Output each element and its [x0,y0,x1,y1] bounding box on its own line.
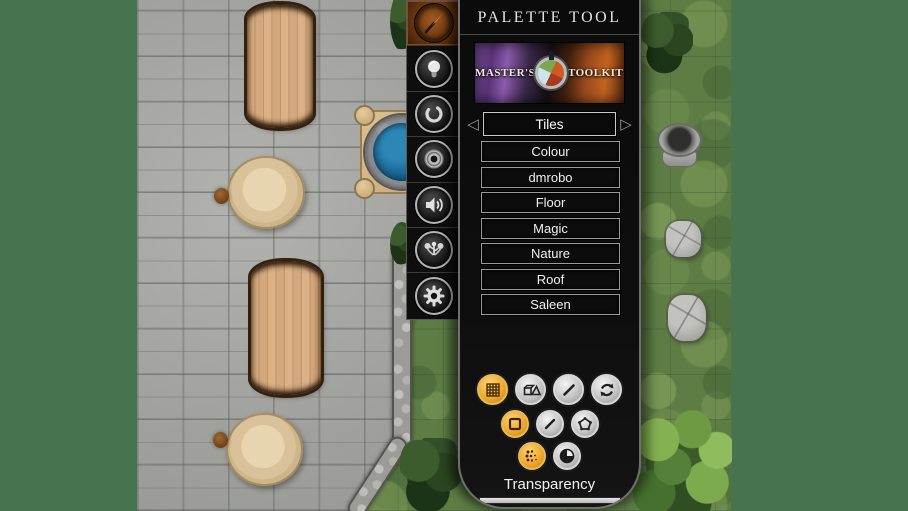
bush [633,408,732,511]
category-button[interactable]: Magic [481,218,620,239]
line-icon[interactable] [553,374,584,405]
line-icon[interactable] [536,410,564,438]
transparency-label: Transparency [460,476,639,493]
masters-toolkit-banner: MASTER'S TOOLKIT [475,43,624,103]
mode-row-1 [460,374,639,405]
polygon-icon[interactable] [571,410,599,438]
lighting-tool-button[interactable] [407,46,461,91]
category-button[interactable]: Floor [481,192,620,213]
stone-planter [657,125,702,168]
round-table [226,413,303,486]
fog-tool-button[interactable] [407,137,461,182]
transparency-slider[interactable] [479,497,621,504]
palette-tool-button[interactable] [407,1,461,46]
dial-icon[interactable] [553,442,581,470]
jug [213,432,228,448]
scatter-tool-button[interactable] [407,228,461,273]
category-button[interactable]: Roof [481,269,620,290]
halftone-icon[interactable] [518,442,546,470]
square-icon[interactable] [501,410,529,438]
bush [400,438,462,511]
jug [214,188,229,204]
well-knob [356,107,373,124]
category-button[interactable]: Nature [481,243,620,264]
rock [668,295,706,341]
shapes-icon[interactable] [515,374,546,405]
audio-tool-button[interactable] [407,183,461,228]
palette-tool-panel: PALETTE TOOL MASTER'S TOOLKIT ◁ Tiles ▷ … [458,0,641,509]
ring-icon [415,95,453,133]
category-button[interactable]: Saleen [481,294,620,315]
round-table [227,156,305,229]
settings-tool-button[interactable] [407,273,461,318]
palette-select[interactable]: Tiles [483,112,616,136]
wooden-table [247,4,313,128]
panel-bottom-controls: Transparency 1.00 [460,374,639,509]
left-arrow-icon[interactable]: ◁ [466,117,480,132]
category-list: Colour dmrobo Floor Magic Nature Roof Sa… [481,141,620,315]
mode-row-2 [460,410,639,438]
banner-right-text: TOOLKIT [567,67,624,79]
palette-selector: ◁ Tiles ▷ [466,112,633,136]
bush [641,12,693,74]
world-emblem-icon [535,57,567,89]
tool-sidebar [406,0,462,320]
brush-icon [415,4,453,42]
scatter-plants-icon [415,231,453,269]
map-canvas[interactable]: PALETTE TOOL MASTER'S TOOLKIT ◁ Tiles ▷ … [0,0,908,511]
speaker-icon [415,186,453,224]
portal-icon [415,140,453,178]
well-knob [356,180,373,197]
wooden-table [251,261,321,395]
gear-icon [415,277,453,315]
path-tool-button[interactable] [407,92,461,137]
refresh-icon[interactable] [591,374,622,405]
mode-row-3 [460,442,639,470]
category-button[interactable]: Colour [481,141,620,162]
banner-left-text: MASTER'S [475,67,535,79]
category-button[interactable]: dmrobo [481,167,620,188]
grid-tiles-icon[interactable] [477,374,508,405]
lightbulb-icon [415,50,453,88]
transparency-value[interactable]: 1.00 [514,507,586,509]
panel-title: PALETTE TOOL [460,0,639,35]
rock [666,221,701,257]
right-arrow-icon[interactable]: ▷ [619,117,633,132]
